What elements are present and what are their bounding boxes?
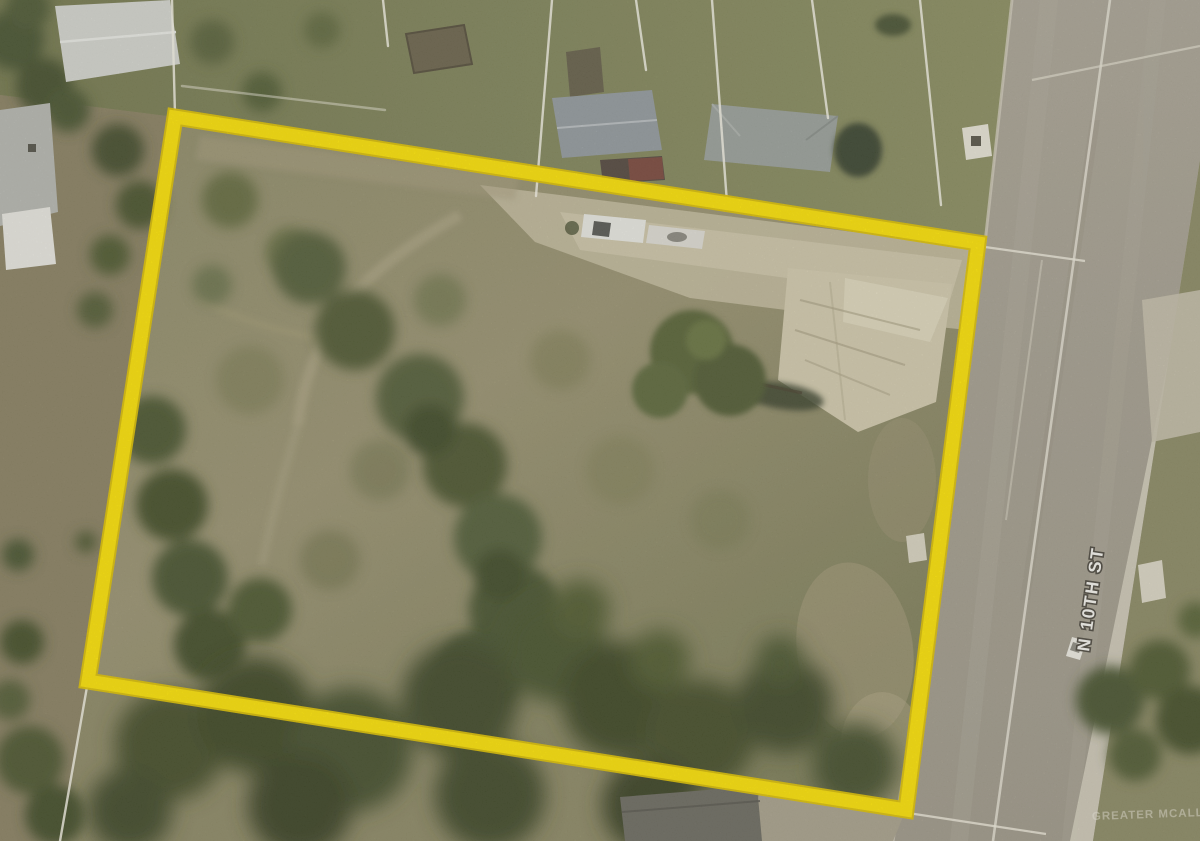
aerial-photo: N 10TH ST GREATER MCALLEN [0, 0, 1200, 841]
aerial-photo-canvas: N 10TH ST GREATER MCALLEN [0, 0, 1200, 841]
grain-light [0, 0, 1200, 841]
